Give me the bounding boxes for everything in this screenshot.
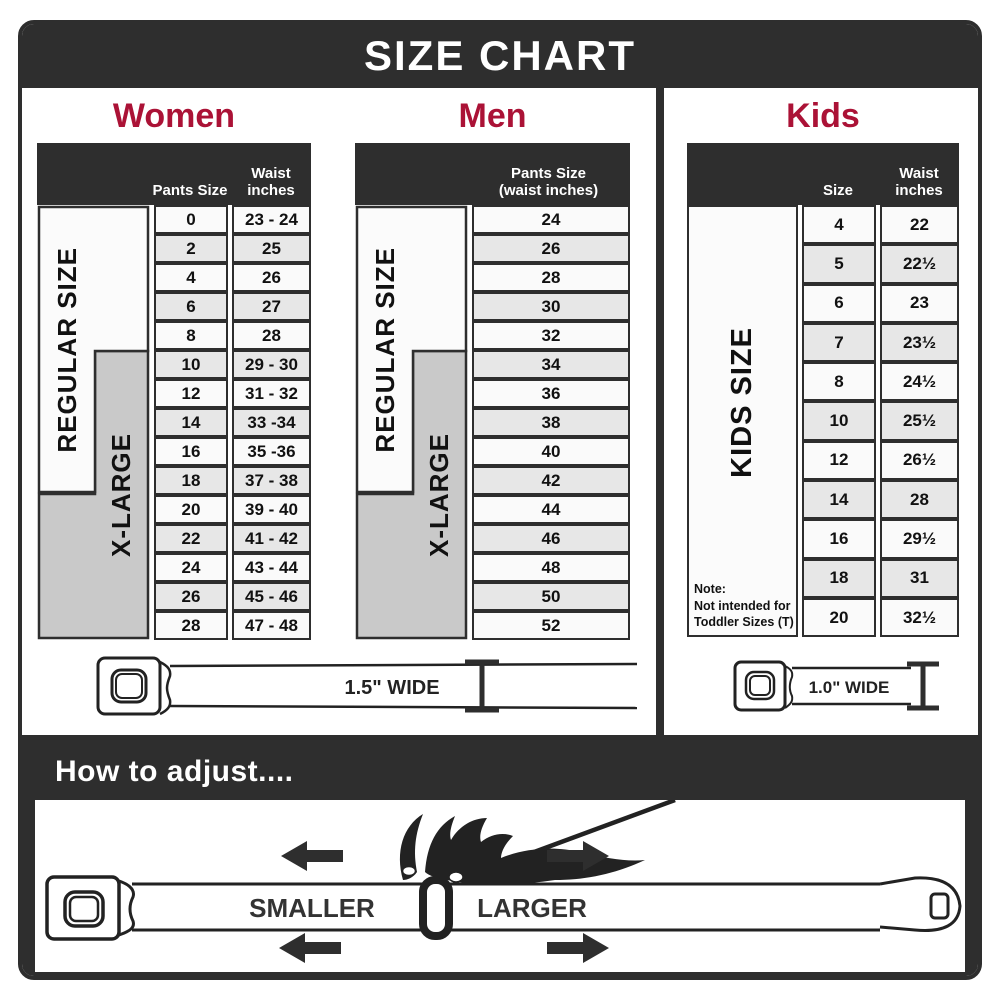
pants-size-cell: 48 xyxy=(472,553,630,582)
smaller-label: SMALLER xyxy=(249,893,375,923)
men-table-row: 28 xyxy=(472,263,630,292)
pants-size-cell: 18 xyxy=(154,466,228,495)
pants-size-cell: 22 xyxy=(154,524,228,553)
arrow-left-icon xyxy=(281,841,343,871)
kid-size-cell: 18 xyxy=(802,559,876,598)
kids-table-row: 4 22 xyxy=(802,205,959,244)
pants-size-cell: 14 xyxy=(154,408,228,437)
women-table-row: 20 39 - 40 xyxy=(154,495,311,524)
kids-table-row: 10 25½ xyxy=(802,401,959,440)
women-table-header: Pants Size Waist inches xyxy=(37,143,311,205)
pants-size-cell: 40 xyxy=(472,437,630,466)
waist-inches-cell: 29½ xyxy=(880,519,959,558)
arrow-left-icon xyxy=(279,933,341,963)
waist-inches-cell: 41 - 42 xyxy=(232,524,311,553)
waist-inches-cell: 27 xyxy=(232,292,311,321)
pants-size-cell: 10 xyxy=(154,350,228,379)
waist-inches-cell: 24½ xyxy=(880,362,959,401)
women-table-row: 24 43 - 44 xyxy=(154,553,311,582)
kids-table-row: 16 29½ xyxy=(802,519,959,558)
kids-size-wrap: KIDS SIZE xyxy=(689,207,795,597)
kid-size-cell: 12 xyxy=(802,441,876,480)
kids-table-row: 6 23 xyxy=(802,284,959,323)
men-table-row: 52 xyxy=(472,611,630,640)
women-table-row: 14 33 -34 xyxy=(154,408,311,437)
men-table-row: 40 xyxy=(472,437,630,466)
waist-inches-cell: 33 -34 xyxy=(232,408,311,437)
how-to-adjust-title: How to adjust.... xyxy=(55,755,294,789)
pants-size-cell: 26 xyxy=(154,582,228,611)
men-table-row: 34 xyxy=(472,350,630,379)
women-xlarge-label: X-LARGE xyxy=(106,433,137,557)
kid-size-cell: 10 xyxy=(802,401,876,440)
kids-heading: Kids xyxy=(687,96,959,136)
waist-inches-cell: 39 - 40 xyxy=(232,495,311,524)
adult-belt-width-label: 1.5" WIDE xyxy=(344,677,439,699)
kids-col-size-label: Size xyxy=(798,182,878,199)
waist-inches-cell: 26½ xyxy=(880,441,959,480)
pants-size-cell: 36 xyxy=(472,379,630,408)
women-table-row: 2 25 xyxy=(154,234,311,263)
how-to-adjust-section: How to adjust.... xyxy=(22,735,978,976)
pants-size-cell: 30 xyxy=(472,292,630,321)
women-table-row: 4 26 xyxy=(154,263,311,292)
men-xlarge-label: X-LARGE xyxy=(424,433,455,557)
men-table-row: 26 xyxy=(472,234,630,263)
men-size-group-labels: REGULAR SIZE X-LARGE xyxy=(355,205,468,640)
size-chart-frame: SIZE CHART Women Men Kids Pants Size Wai… xyxy=(18,20,982,980)
kid-size-cell: 7 xyxy=(802,323,876,362)
pants-size-cell: 28 xyxy=(154,611,228,640)
width-measure-icon xyxy=(907,664,939,708)
kid-size-cell: 14 xyxy=(802,480,876,519)
waist-inches-cell: 22½ xyxy=(880,244,959,283)
waist-inches-cell: 28 xyxy=(232,321,311,350)
women-size-group-labels: REGULAR SIZE X-LARGE xyxy=(37,205,150,640)
women-size-rows: 0 23 - 24 2 25 4 26 6 27 8 28 xyxy=(154,205,311,640)
belt-adjuster-icon xyxy=(423,880,449,936)
men-table-row: 50 xyxy=(472,582,630,611)
men-table-row: 44 xyxy=(472,495,630,524)
waist-inches-cell: 23 - 24 xyxy=(232,205,311,234)
waist-inches-cell: 31 - 32 xyxy=(232,379,311,408)
kids-table-header: Size Waist inches xyxy=(687,143,959,205)
men-table-row: 38 xyxy=(472,408,630,437)
waist-inches-cell: 43 - 44 xyxy=(232,553,311,582)
waist-inches-cell: 23½ xyxy=(880,323,959,362)
women-table-row: 22 41 - 42 xyxy=(154,524,311,553)
size-chart-infographic: SIZE CHART Women Men Kids Pants Size Wai… xyxy=(0,0,1000,1000)
women-table-row: 26 45 - 46 xyxy=(154,582,311,611)
men-table-header: Pants Size (waist inches) xyxy=(355,143,630,205)
pants-size-cell: 4 xyxy=(154,263,228,292)
women-table-row: 6 27 xyxy=(154,292,311,321)
pants-size-cell: 32 xyxy=(472,321,630,350)
adult-belt-illustration: 1.5" WIDE xyxy=(92,654,642,720)
men-table-row: 36 xyxy=(472,379,630,408)
men-xlarge-wrap: X-LARGE xyxy=(413,353,465,636)
waist-inches-cell: 26 xyxy=(232,263,311,292)
panel-divider xyxy=(656,88,664,735)
women-table-row: 18 37 - 38 xyxy=(154,466,311,495)
women-table-row: 10 29 - 30 xyxy=(154,350,311,379)
pants-size-cell: 44 xyxy=(472,495,630,524)
men-col-label-line1: Pants Size xyxy=(511,165,586,182)
women-table-row: 28 47 - 48 xyxy=(154,611,311,640)
pants-size-cell: 42 xyxy=(472,466,630,495)
pants-size-cell: 16 xyxy=(154,437,228,466)
men-regular-wrap: REGULAR SIZE xyxy=(359,209,411,491)
men-table-row: 30 xyxy=(472,292,630,321)
seatbelt-buckle-icon xyxy=(735,662,792,710)
waist-inches-cell: 31 xyxy=(880,559,959,598)
waist-inches-cell: 29 - 30 xyxy=(232,350,311,379)
pants-size-cell: 2 xyxy=(154,234,228,263)
pants-size-cell: 38 xyxy=(472,408,630,437)
men-col-label-line2: (waist inches) xyxy=(499,182,598,199)
pants-size-cell: 12 xyxy=(154,379,228,408)
kid-size-cell: 4 xyxy=(802,205,876,244)
men-col-label: Pants Size (waist inches) xyxy=(467,165,630,200)
men-table-row: 32 xyxy=(472,321,630,350)
kids-table-row: 12 26½ xyxy=(802,441,959,480)
arrow-right-icon xyxy=(547,933,609,963)
title-bar: SIZE CHART xyxy=(22,24,978,88)
pants-size-cell: 46 xyxy=(472,524,630,553)
waist-inches-cell: 35 -36 xyxy=(232,437,311,466)
kid-size-cell: 16 xyxy=(802,519,876,558)
kid-size-cell: 6 xyxy=(802,284,876,323)
women-table-row: 16 35 -36 xyxy=(154,437,311,466)
pants-size-cell: 34 xyxy=(472,350,630,379)
kids-note-line1: Note: xyxy=(694,582,726,596)
women-col-size-label: Pants Size xyxy=(150,182,230,199)
women-heading: Women xyxy=(37,96,311,136)
kids-size-group-label-box: KIDS SIZE Note: Not intended for Toddler… xyxy=(687,205,798,637)
adjust-belt-illustration: SMALLER LARGER xyxy=(35,800,965,972)
kids-table-row: 18 31 xyxy=(802,559,959,598)
women-table-row: 8 28 xyxy=(154,321,311,350)
pants-size-cell: 6 xyxy=(154,292,228,321)
kids-col-waist-label: Waist inches xyxy=(882,165,956,200)
kids-belt-width-label: 1.0" WIDE xyxy=(809,678,890,697)
kids-size-rows: 4 22 5 22½ 6 23 7 23½ 8 24½ xyxy=(802,205,959,637)
pants-size-cell: 52 xyxy=(472,611,630,640)
pants-size-cell: 24 xyxy=(154,553,228,582)
kid-size-cell: 8 xyxy=(802,362,876,401)
page-title: SIZE CHART xyxy=(22,24,978,88)
women-xlarge-wrap: X-LARGE xyxy=(95,353,147,636)
kids-note: Note: Not intended for Toddler Sizes (T) xyxy=(694,581,794,630)
kid-size-cell: 5 xyxy=(802,244,876,283)
men-table-row: 46 xyxy=(472,524,630,553)
pants-size-cell: 20 xyxy=(154,495,228,524)
pants-size-cell: 8 xyxy=(154,321,228,350)
pants-size-cell: 0 xyxy=(154,205,228,234)
kids-table-row: 20 32½ xyxy=(802,598,959,637)
kids-table-row: 8 24½ xyxy=(802,362,959,401)
women-regular-wrap: REGULAR SIZE xyxy=(41,209,93,491)
men-table-row: 48 xyxy=(472,553,630,582)
width-measure-icon xyxy=(465,662,499,710)
seatbelt-buckle-icon xyxy=(98,658,170,714)
waist-inches-cell: 45 - 46 xyxy=(232,582,311,611)
women-col-waist-label: Waist inches xyxy=(234,165,308,200)
men-size-rows: 24 26 28 30 32 34 36 xyxy=(472,205,630,640)
kids-size-label: KIDS SIZE xyxy=(726,327,759,478)
men-table-row: 42 xyxy=(472,466,630,495)
pants-size-cell: 26 xyxy=(472,234,630,263)
waist-inches-cell: 47 - 48 xyxy=(232,611,311,640)
adjust-illustration-box: SMALLER LARGER xyxy=(35,800,965,972)
kids-table-row: 5 22½ xyxy=(802,244,959,283)
pants-size-cell: 28 xyxy=(472,263,630,292)
belt-tip-icon xyxy=(880,878,960,931)
waist-inches-cell: 22 xyxy=(880,205,959,244)
waist-inches-cell: 25½ xyxy=(880,401,959,440)
waist-inches-cell: 25 xyxy=(232,234,311,263)
waist-inches-cell: 32½ xyxy=(880,598,959,637)
kids-belt-illustration: 1.0" WIDE xyxy=(727,654,962,720)
pants-size-cell: 24 xyxy=(472,205,630,234)
waist-inches-cell: 37 - 38 xyxy=(232,466,311,495)
kids-note-line2: Not intended for xyxy=(694,599,791,613)
larger-label: LARGER xyxy=(477,893,587,923)
waist-inches-cell: 28 xyxy=(880,480,959,519)
waist-inches-cell: 23 xyxy=(880,284,959,323)
pants-size-cell: 50 xyxy=(472,582,630,611)
men-regular-size-label: REGULAR SIZE xyxy=(370,247,401,453)
men-table-row: 24 xyxy=(472,205,630,234)
kids-table-row: 7 23½ xyxy=(802,323,959,362)
seatbelt-buckle-icon xyxy=(47,877,133,939)
women-regular-size-label: REGULAR SIZE xyxy=(52,247,83,453)
kids-note-line3: Toddler Sizes (T) xyxy=(694,615,794,629)
men-heading: Men xyxy=(355,96,630,136)
women-table-row: 0 23 - 24 xyxy=(154,205,311,234)
women-table-row: 12 31 - 32 xyxy=(154,379,311,408)
kid-size-cell: 20 xyxy=(802,598,876,637)
kids-table-row: 14 28 xyxy=(802,480,959,519)
